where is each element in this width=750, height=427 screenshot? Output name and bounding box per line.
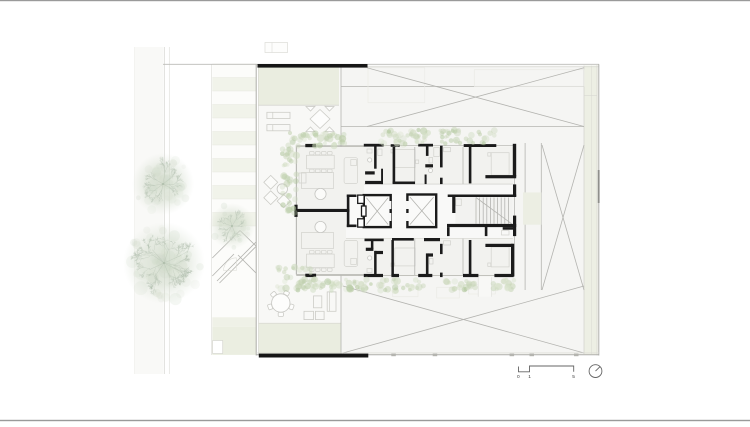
svg-text:0: 0 [517, 374, 520, 380]
svg-text:1: 1 [528, 374, 531, 380]
svg-text:5: 5 [572, 374, 575, 380]
